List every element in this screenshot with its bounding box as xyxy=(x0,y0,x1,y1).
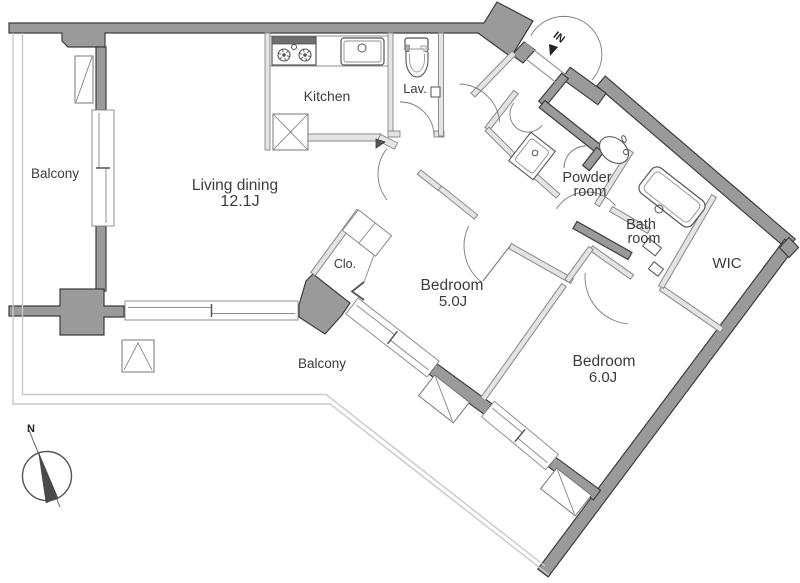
svg-text:WIC: WIC xyxy=(712,255,741,272)
svg-text:Living dining: Living dining xyxy=(192,177,278,194)
svg-text:Clo.: Clo. xyxy=(334,257,356,271)
svg-text:Balcony: Balcony xyxy=(298,356,346,371)
svg-text:5.0J: 5.0J xyxy=(439,293,467,310)
svg-text:Lav.: Lav. xyxy=(403,81,427,96)
svg-text:Kitchen: Kitchen xyxy=(304,88,351,104)
svg-text:6.0J: 6.0J xyxy=(589,369,617,386)
svg-text:Balcony: Balcony xyxy=(31,166,79,181)
svg-text:IN: IN xyxy=(551,30,567,46)
svg-text:room: room xyxy=(573,184,606,200)
svg-text:Bedroom: Bedroom xyxy=(421,277,484,294)
svg-text:room: room xyxy=(627,231,660,247)
svg-text:N: N xyxy=(27,423,35,435)
svg-text:12.1J: 12.1J xyxy=(220,193,259,210)
svg-text:Bedroom: Bedroom xyxy=(573,353,636,370)
